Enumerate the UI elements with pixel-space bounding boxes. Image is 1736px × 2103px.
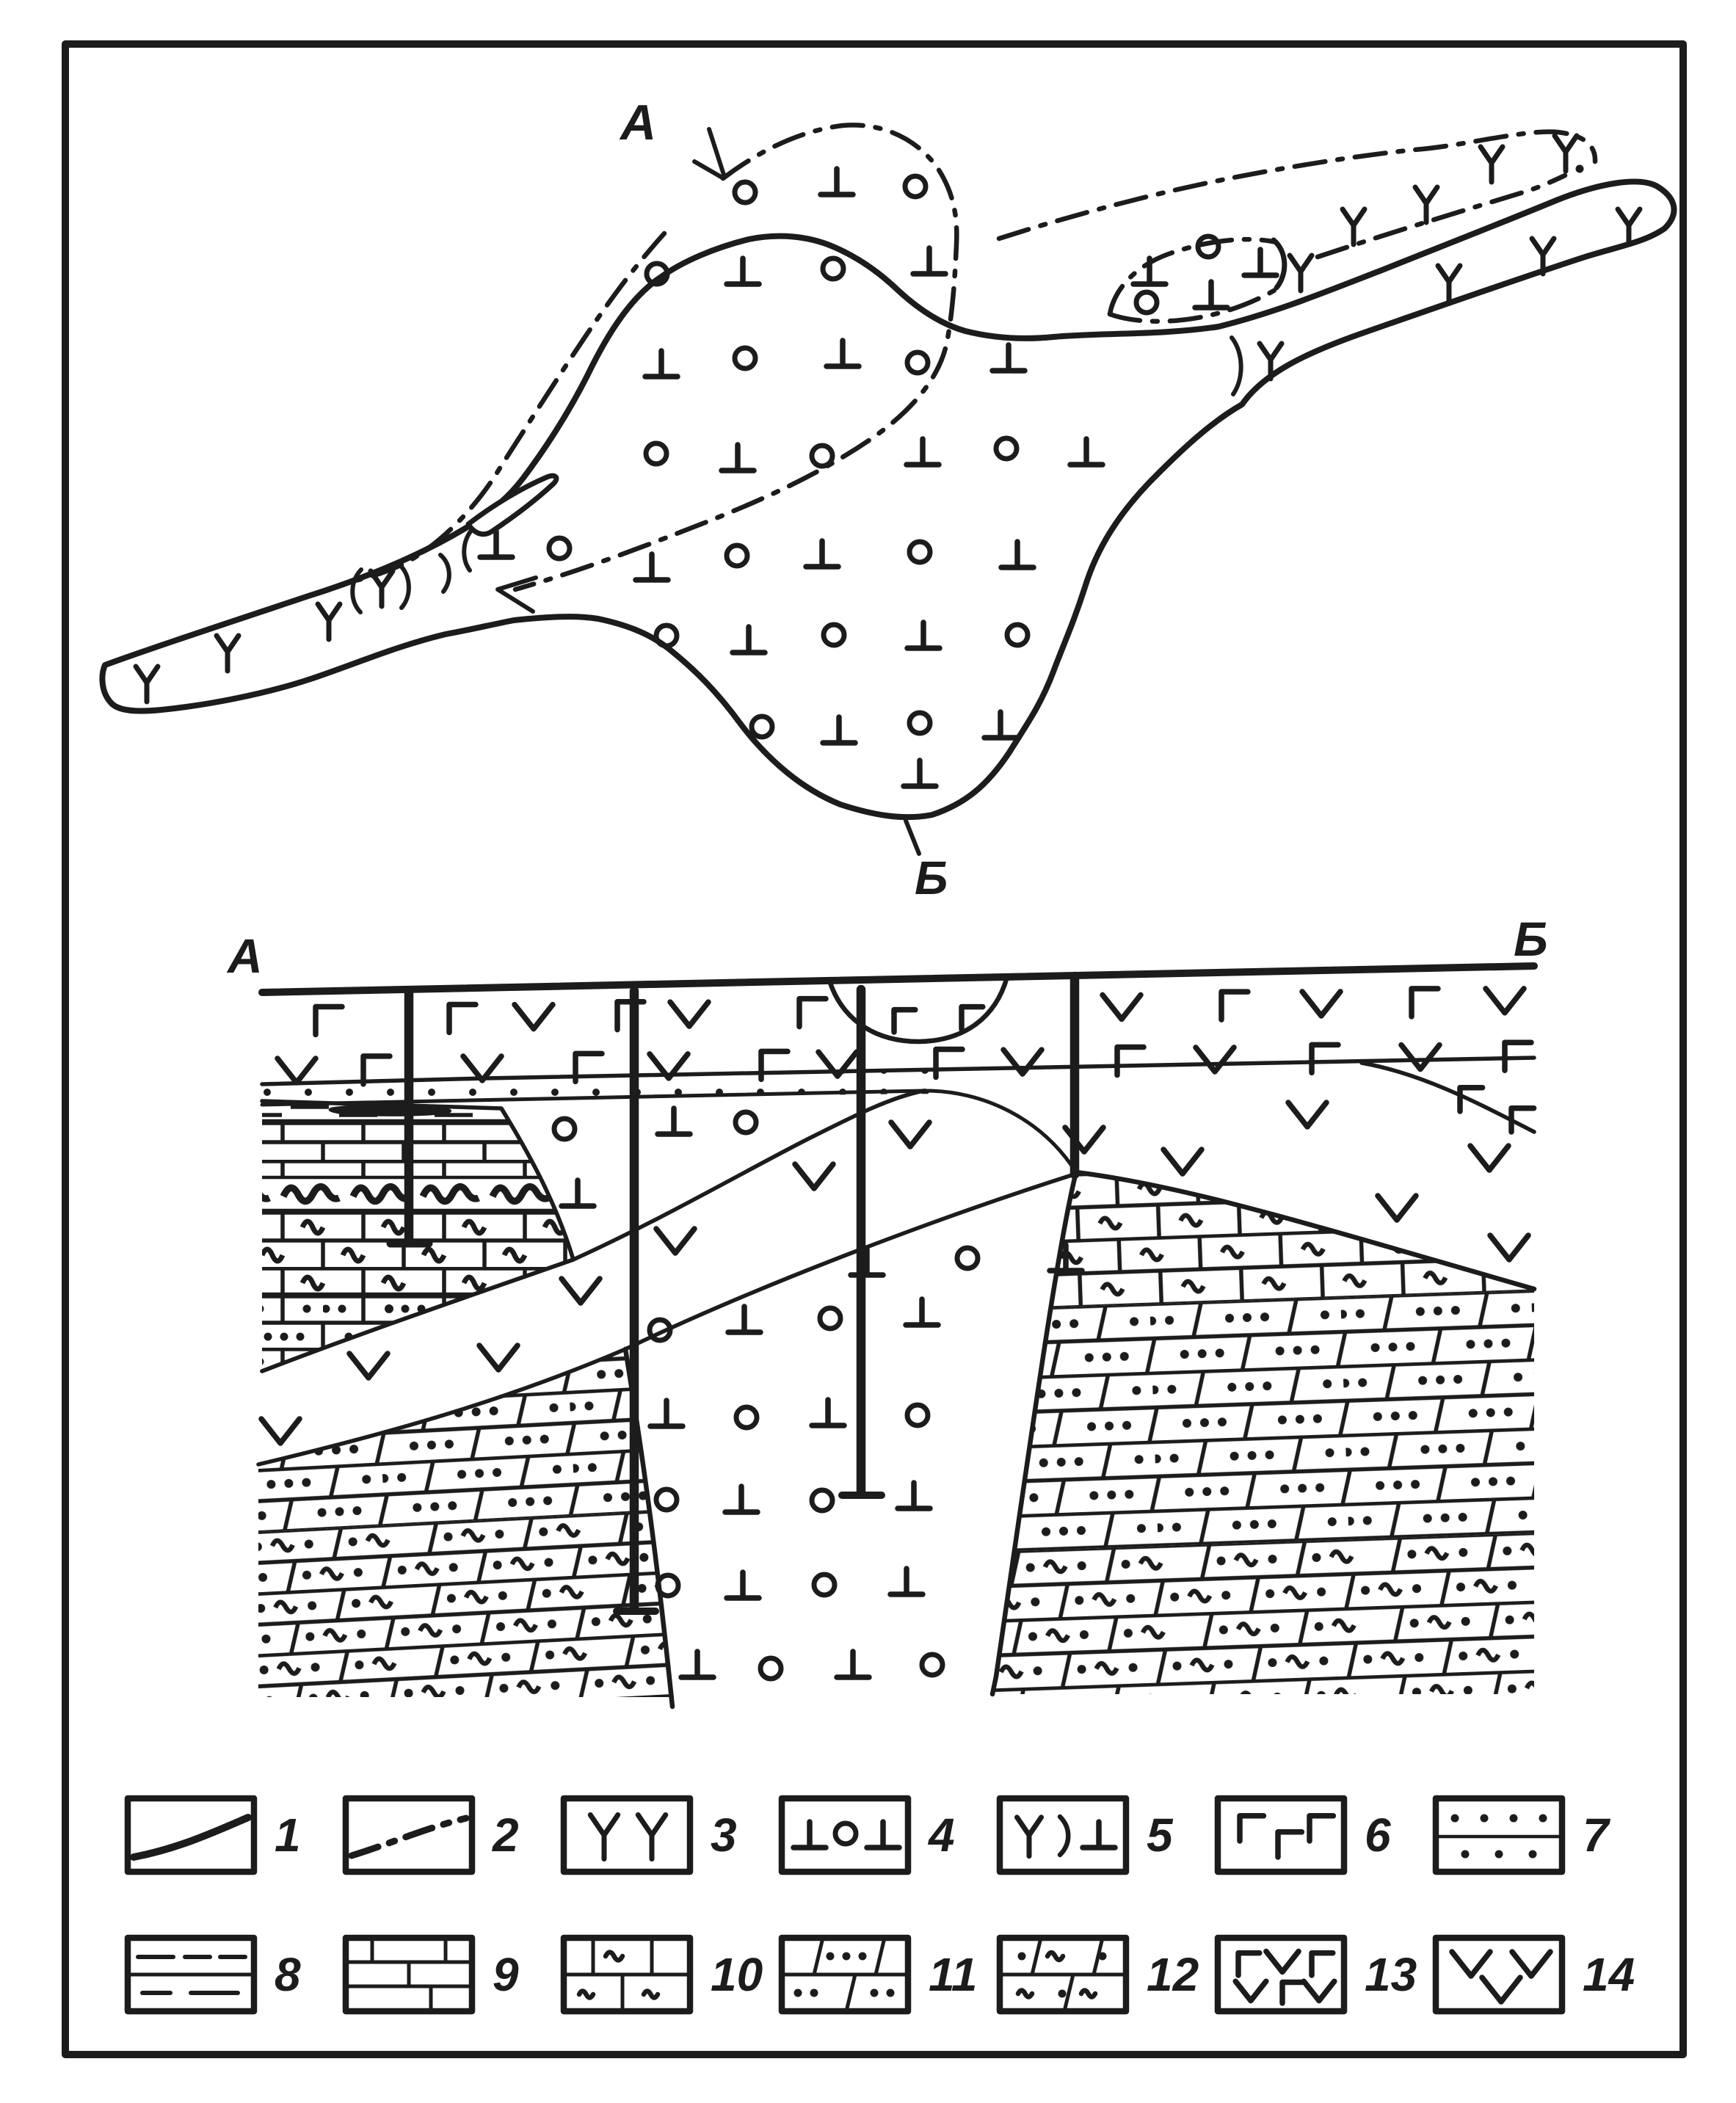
svg-text:Б: Б — [915, 851, 948, 904]
svg-text:8: 8 — [275, 1948, 301, 2001]
svg-text:14: 14 — [1583, 1948, 1635, 2001]
svg-text:А: А — [619, 95, 656, 150]
svg-text:7: 7 — [1583, 1809, 1611, 1862]
svg-text:2: 2 — [492, 1809, 519, 1862]
svg-text:4: 4 — [927, 1809, 955, 1862]
svg-text:А: А — [226, 929, 263, 983]
svg-text:1: 1 — [275, 1809, 301, 1862]
svg-text:9: 9 — [493, 1948, 519, 2001]
svg-text:6: 6 — [1365, 1809, 1391, 1862]
svg-text:3: 3 — [711, 1809, 737, 1862]
svg-text:5: 5 — [1147, 1809, 1174, 1862]
svg-text:10: 10 — [711, 1948, 763, 2001]
svg-text:12: 12 — [1147, 1948, 1199, 2001]
svg-text:11: 11 — [929, 1948, 977, 2001]
svg-text:Б: Б — [1514, 912, 1548, 966]
svg-text:13: 13 — [1365, 1948, 1417, 2001]
